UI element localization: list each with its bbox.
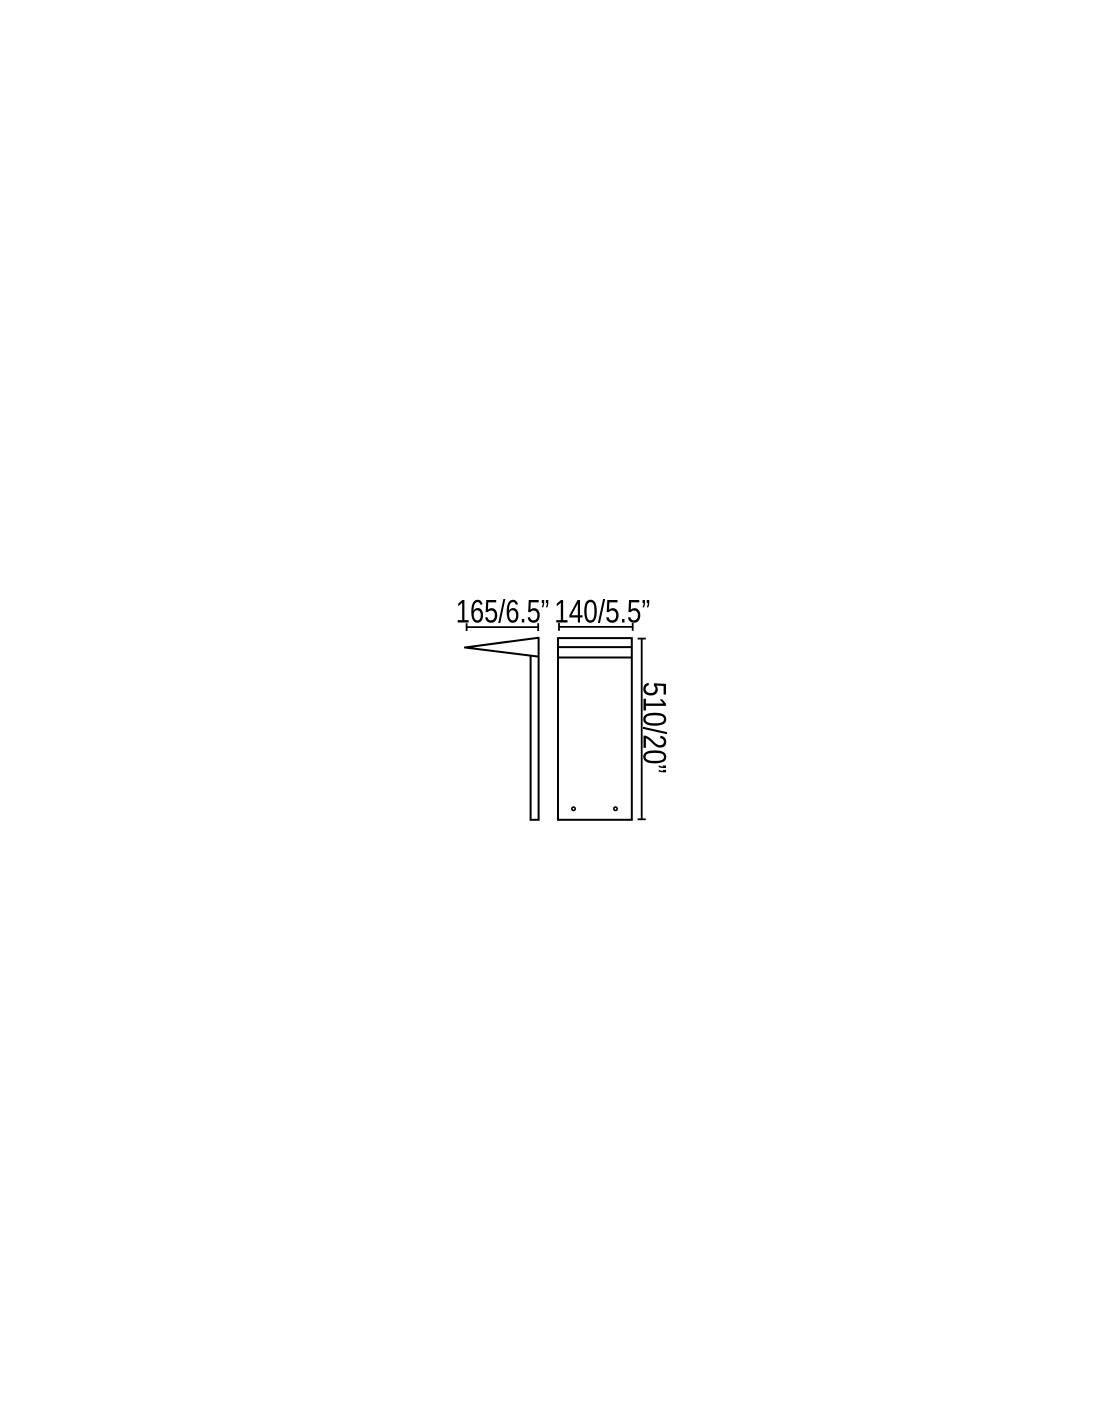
svg-text:165/6.5”: 165/6.5”	[456, 593, 550, 629]
svg-text:510/20”: 510/20”	[637, 682, 673, 774]
svg-text:140/5.5”: 140/5.5”	[554, 593, 650, 629]
